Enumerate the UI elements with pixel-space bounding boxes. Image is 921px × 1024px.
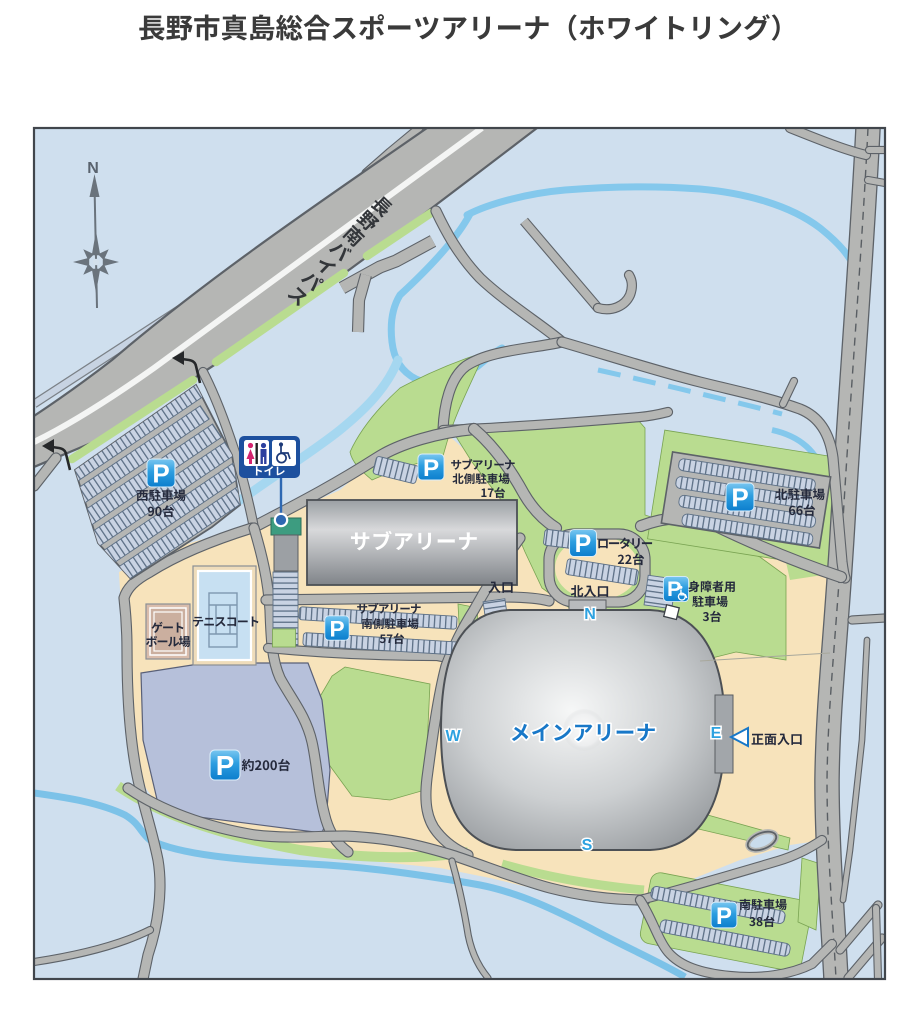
svg-text:P: P (667, 576, 681, 601)
svg-text:N: N (584, 606, 596, 623)
svg-text:S: S (582, 837, 593, 854)
svg-text:E: E (711, 725, 722, 742)
svg-text:N: N (87, 160, 99, 177)
svg-text:W: W (445, 728, 461, 745)
